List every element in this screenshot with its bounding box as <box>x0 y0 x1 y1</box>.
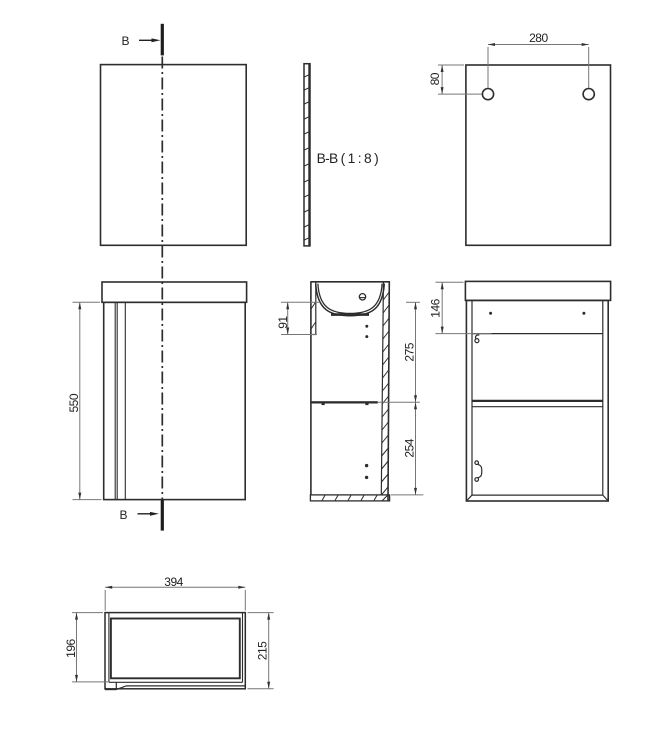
svg-text:254: 254 <box>403 438 417 457</box>
svg-text:146: 146 <box>428 298 442 317</box>
svg-text:B-B ( 1 : 8 ): B-B ( 1 : 8 ) <box>317 151 379 166</box>
svg-text:280: 280 <box>529 31 548 45</box>
svg-text:196: 196 <box>64 638 78 657</box>
svg-text:80: 80 <box>428 72 442 85</box>
svg-text:550: 550 <box>67 393 81 412</box>
svg-text:394: 394 <box>164 575 183 589</box>
svg-text:91: 91 <box>276 316 290 329</box>
svg-text:275: 275 <box>403 342 417 361</box>
svg-text:215: 215 <box>255 641 269 660</box>
svg-text:B: B <box>122 34 130 48</box>
svg-text:B: B <box>120 508 128 522</box>
